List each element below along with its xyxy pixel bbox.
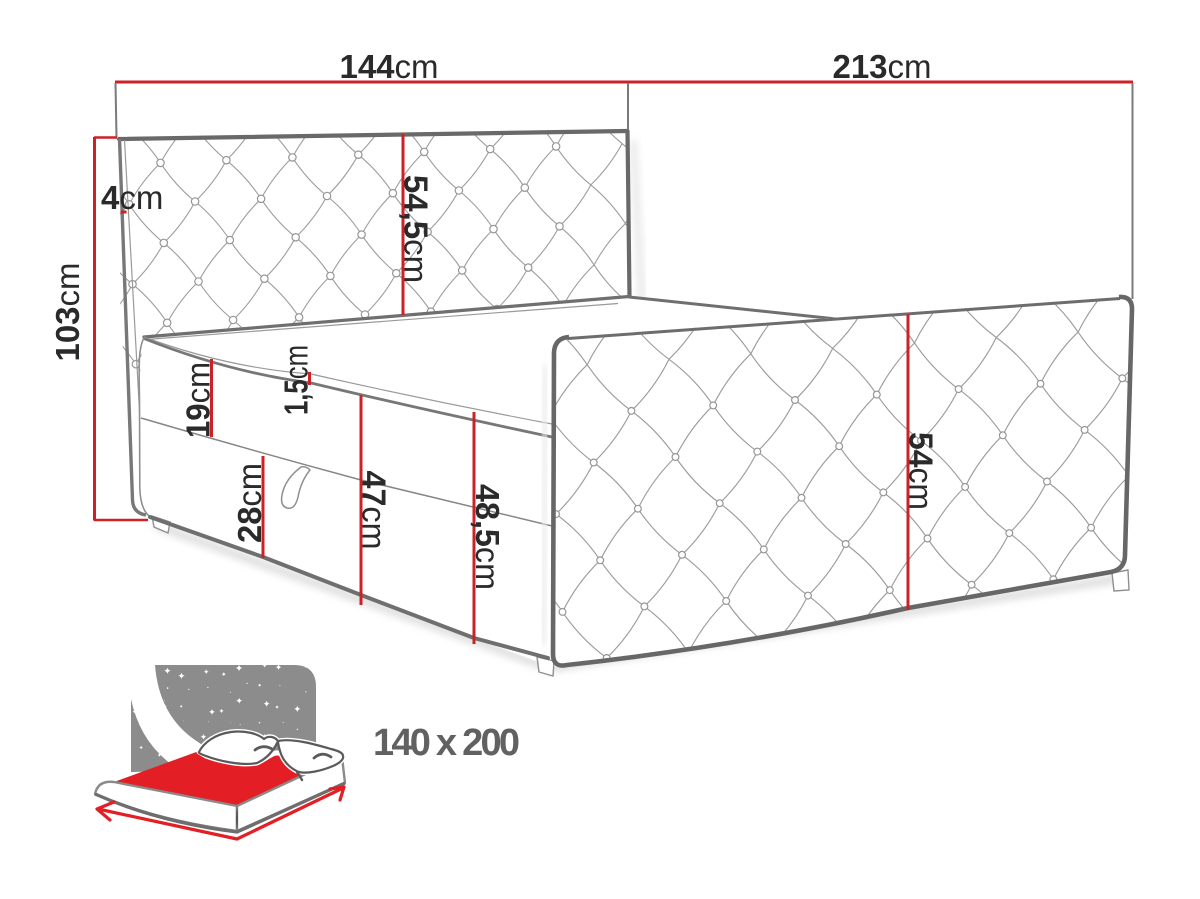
- svg-text:54,5cm: 54,5cm: [398, 175, 435, 283]
- svg-text:103cm: 103cm: [49, 262, 86, 361]
- svg-text:48,5cm: 48,5cm: [469, 484, 506, 590]
- svg-text:140 x 200: 140 x 200: [373, 722, 520, 764]
- svg-text:54cm: 54cm: [903, 432, 940, 510]
- svg-text:47cm: 47cm: [356, 471, 393, 550]
- svg-text:19cm: 19cm: [180, 362, 217, 438]
- svg-text:213cm: 213cm: [832, 48, 931, 85]
- svg-text:4cm: 4cm: [101, 179, 163, 216]
- svg-text:144cm: 144cm: [339, 48, 438, 85]
- svg-text:28cm: 28cm: [231, 463, 268, 543]
- svg-text:1,5cm: 1,5cm: [278, 345, 315, 415]
